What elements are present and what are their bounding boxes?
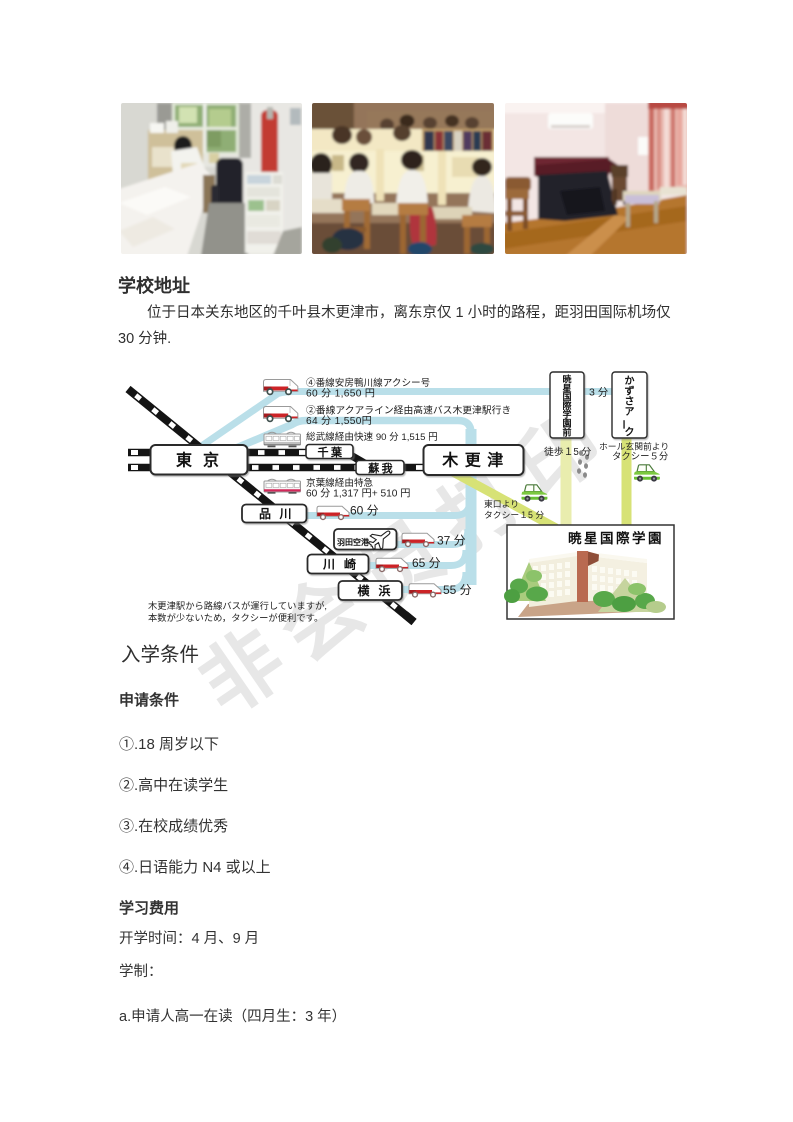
svg-text:暁星国際学園: 暁星国際学園 bbox=[568, 530, 664, 546]
svg-text:東京: 東京 bbox=[176, 451, 230, 470]
svg-text:徒歩１5 分: 徒歩１5 分 bbox=[544, 445, 592, 458]
svg-text:55 分: 55 分 bbox=[443, 583, 472, 597]
svg-text:蘇我: 蘇我 bbox=[367, 461, 395, 475]
svg-text:本数が少ないため，タクシーが便利です。: 本数が少ないため，タクシーが便利です。 bbox=[148, 612, 323, 623]
svg-text:木更津: 木更津 bbox=[441, 451, 510, 470]
svg-text:川崎: 川崎 bbox=[322, 557, 365, 572]
svg-text:②番線アクアライン経由高速バス木更津駅行き: ②番線アクアライン経由高速バス木更津駅行き bbox=[306, 404, 511, 417]
svg-text:タクシー５分: タクシー５分 bbox=[612, 451, 668, 462]
svg-text:横浜: 横浜 bbox=[357, 583, 399, 598]
svg-text:60 分 1,650 円: 60 分 1,650 円 bbox=[306, 388, 375, 400]
svg-text:羽田空港: 羽田空港 bbox=[337, 537, 370, 547]
svg-text:総武線経由快速 90 分 1,515 円: 総武線経由快速 90 分 1,515 円 bbox=[306, 431, 438, 443]
svg-text:64 分 1,550円: 64 分 1,550円 bbox=[306, 415, 372, 427]
svg-text:37 分: 37 分 bbox=[437, 534, 466, 548]
svg-text:暁星国際学園前: 暁星国際学園前 bbox=[562, 374, 572, 438]
svg-text:品川: 品川 bbox=[259, 507, 300, 521]
svg-text:木更津駅から路線バスが運行していますが,: 木更津駅から路線バスが運行していますが, bbox=[148, 600, 327, 611]
svg-text:60 分 1,317 円+ 510 円: 60 分 1,317 円+ 510 円 bbox=[306, 488, 411, 500]
svg-text:東口より: 東口より bbox=[484, 498, 519, 509]
svg-text:65 分: 65 分 bbox=[412, 556, 441, 570]
svg-text:千葉: 千葉 bbox=[318, 445, 345, 459]
svg-text:京葉線経由特急: 京葉線経由特急 bbox=[306, 477, 374, 489]
svg-text:60 分: 60 分 bbox=[350, 504, 379, 518]
svg-text:3 分: 3 分 bbox=[589, 387, 609, 399]
svg-text:④番線安房鴨川線アクシー号: ④番線安房鴨川線アクシー号 bbox=[306, 377, 430, 389]
svg-text:タクシー１5 分: タクシー１5 分 bbox=[484, 510, 544, 520]
